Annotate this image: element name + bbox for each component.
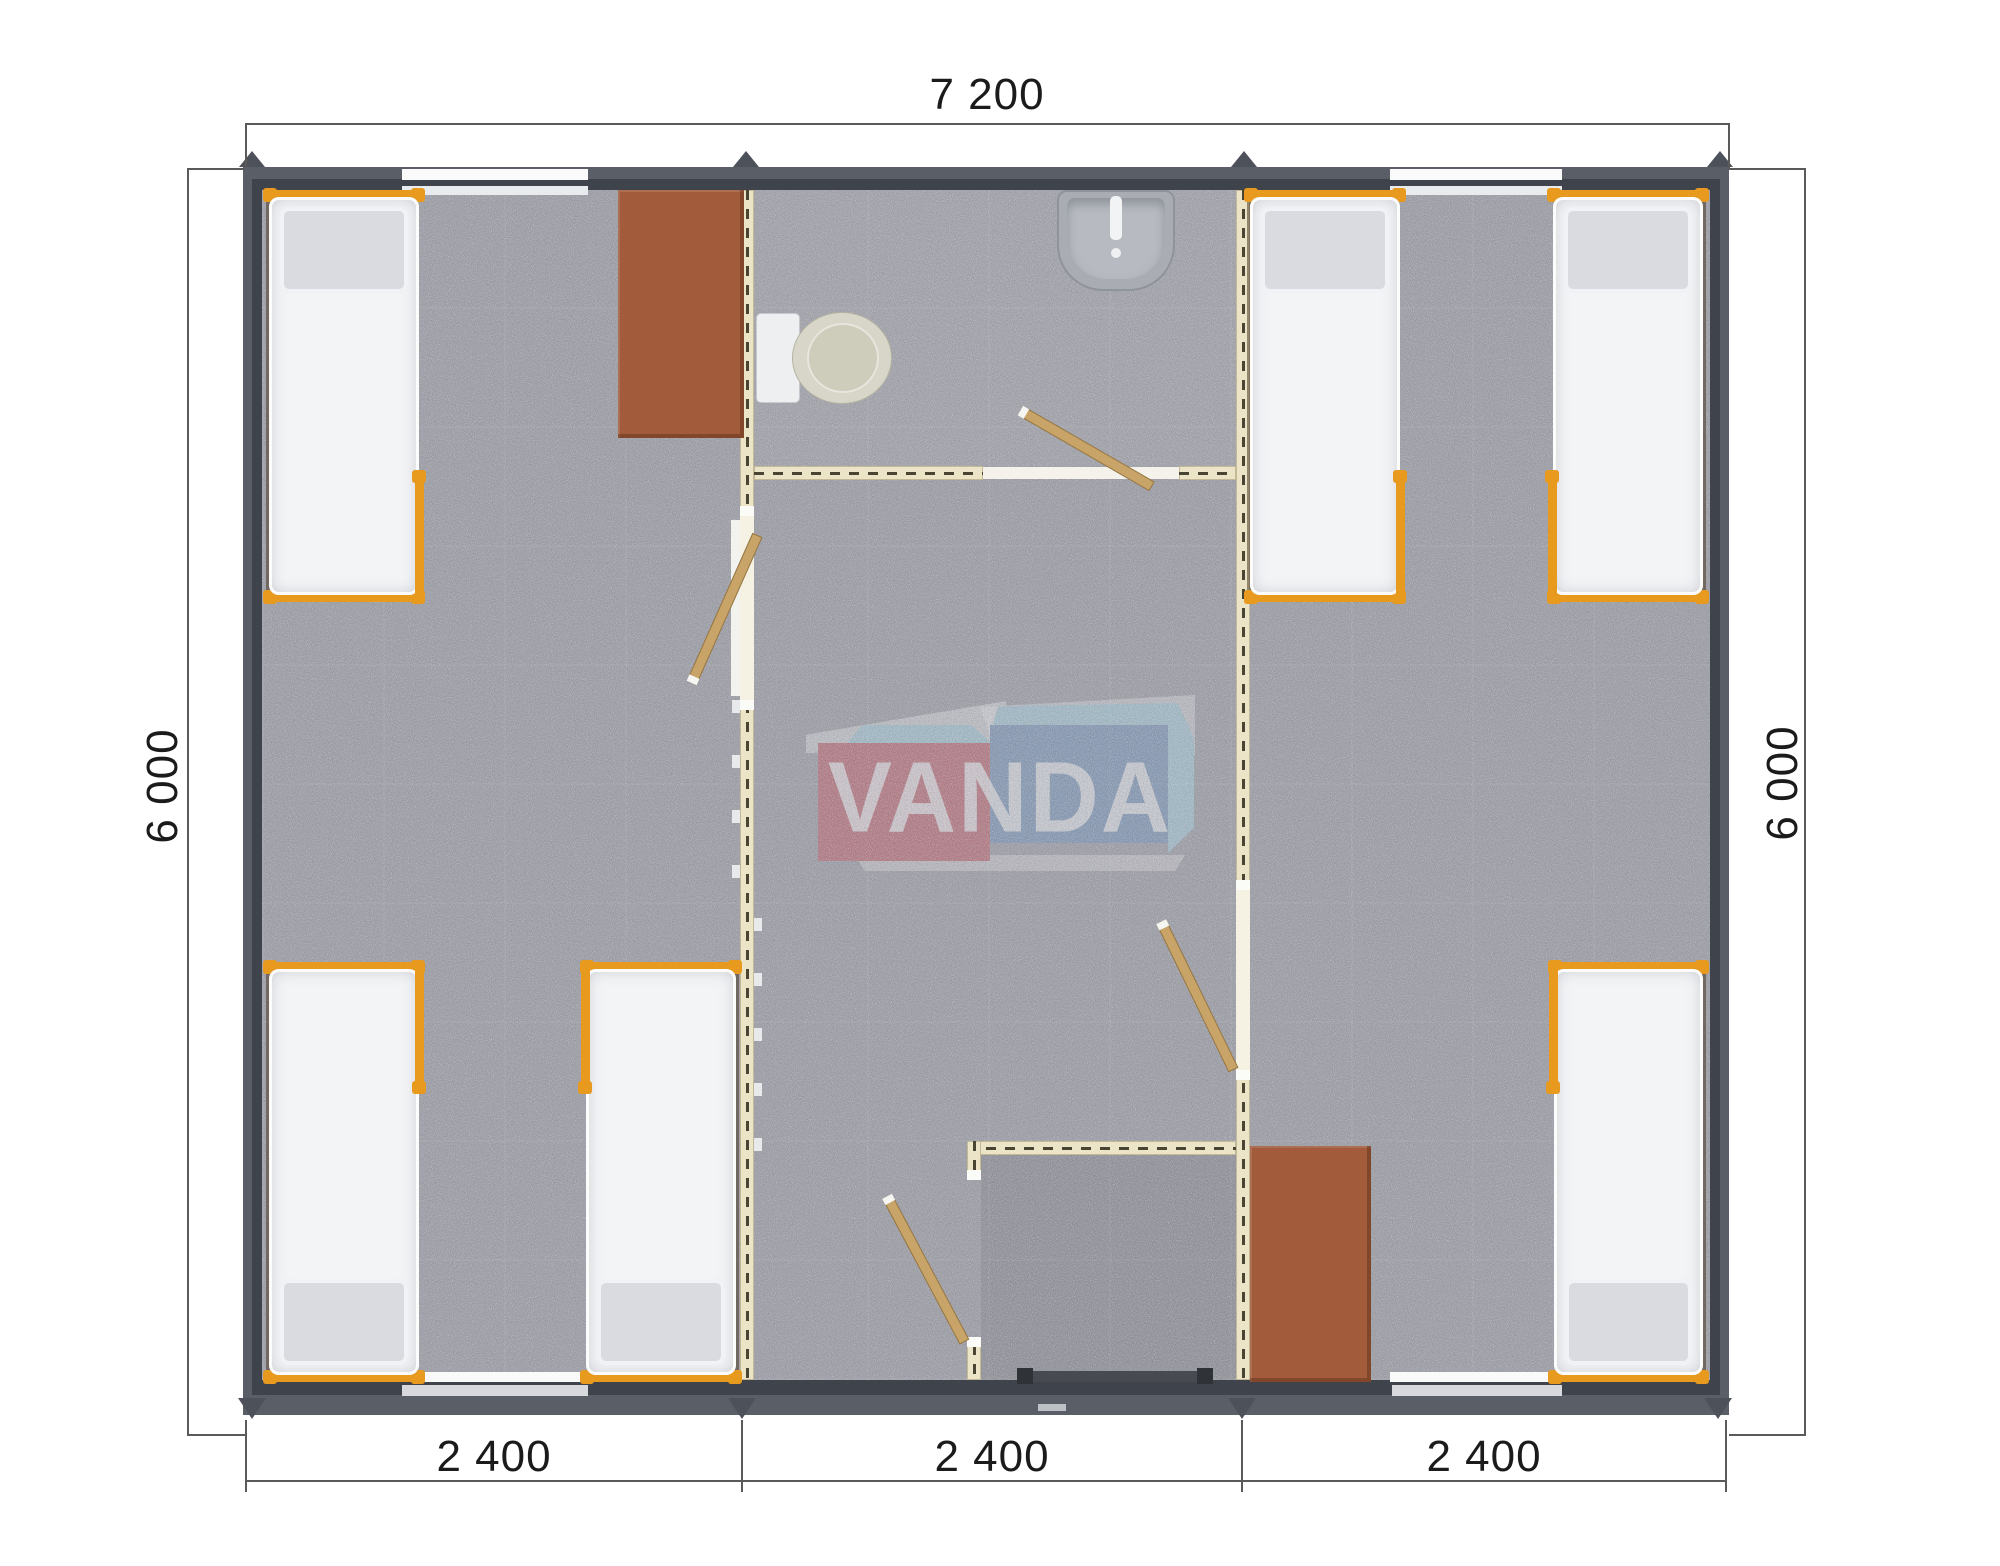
roof-marker-icon bbox=[733, 151, 759, 167]
bed-pillow bbox=[597, 1279, 725, 1365]
bed-side-rail bbox=[415, 476, 424, 594]
bed bbox=[1550, 190, 1706, 602]
bathroom-wall bbox=[1179, 466, 1236, 480]
window-sill bbox=[1390, 1372, 1562, 1382]
window bbox=[1390, 169, 1562, 180]
bed-side-rail bbox=[415, 970, 424, 1088]
door-opening-bathroom bbox=[983, 467, 1179, 479]
dimension-label-bottom-2: 2 400 bbox=[892, 1432, 1092, 1482]
bathroom-wall bbox=[754, 466, 983, 480]
bed bbox=[583, 962, 739, 1382]
bed bbox=[1551, 962, 1706, 1382]
extension-line bbox=[741, 1420, 743, 1492]
roof-marker-icon bbox=[239, 151, 265, 167]
bed-pillow bbox=[1565, 1279, 1692, 1365]
dimension-label-bottom-1: 2 400 bbox=[394, 1432, 594, 1482]
bed-side-rail bbox=[1549, 970, 1558, 1088]
wall-panel-nub bbox=[754, 1083, 762, 1096]
dimension-label-top: 7 200 bbox=[887, 70, 1087, 120]
door-jamb bbox=[1236, 1070, 1250, 1080]
desk bbox=[1250, 1146, 1371, 1382]
dimension-label-left: 6 000 bbox=[138, 711, 188, 861]
shower-wall bbox=[967, 1345, 981, 1380]
dimension-line-top bbox=[245, 123, 1730, 125]
window bbox=[402, 1385, 588, 1396]
extension-line bbox=[1729, 1434, 1806, 1436]
toilet-seat bbox=[807, 323, 879, 393]
door-jamb bbox=[740, 700, 754, 710]
wall-panel-nub bbox=[754, 973, 762, 986]
shower-wall bbox=[967, 1141, 1236, 1155]
extension-line bbox=[245, 1420, 247, 1492]
floor-plan: VANDA bbox=[0, 0, 2000, 1566]
dimension-label-bottom-3: 2 400 bbox=[1384, 1432, 1584, 1482]
window bbox=[1392, 1385, 1562, 1396]
extension-line bbox=[245, 123, 247, 168]
toilet bbox=[792, 312, 892, 404]
floor-texture bbox=[262, 190, 1710, 1380]
door-jamb bbox=[1236, 880, 1250, 890]
sink bbox=[1057, 190, 1175, 291]
door-jamb bbox=[740, 506, 754, 516]
faucet bbox=[1110, 196, 1122, 240]
extension-line bbox=[1728, 123, 1730, 168]
window-sill bbox=[399, 1372, 588, 1382]
dimension-arrow-icon bbox=[1228, 1398, 1256, 1419]
roof-marker-icon bbox=[1231, 151, 1257, 167]
bed bbox=[266, 962, 422, 1382]
wall-panel-nub bbox=[732, 700, 740, 713]
door-jamb bbox=[967, 1170, 981, 1180]
wall-panel-nub bbox=[754, 918, 762, 931]
extension-line bbox=[1729, 168, 1806, 170]
dimension-label-right: 6 000 bbox=[1758, 708, 1808, 858]
entrance-door bbox=[1017, 1371, 1213, 1382]
extension-line bbox=[1241, 1420, 1243, 1492]
bed-pillow bbox=[1564, 207, 1692, 293]
wall-panel-nub bbox=[732, 865, 740, 878]
window-sill bbox=[1390, 186, 1562, 195]
dimension-arrow-icon bbox=[728, 1398, 756, 1419]
bed-side-rail bbox=[1548, 476, 1557, 594]
wall-panel-nub bbox=[754, 1138, 762, 1151]
wall-panel-nub bbox=[732, 755, 740, 768]
extension-line bbox=[1725, 1420, 1727, 1492]
window bbox=[402, 169, 588, 180]
entrance-door-jamb bbox=[1017, 1368, 1033, 1384]
drain bbox=[1111, 248, 1121, 258]
bed-pillow bbox=[280, 1279, 408, 1365]
entrance-step bbox=[1038, 1404, 1066, 1411]
entrance-door-jamb bbox=[1197, 1368, 1213, 1384]
wall-panel-nub bbox=[732, 810, 740, 823]
bed-side-rail bbox=[1396, 476, 1405, 594]
bed bbox=[266, 190, 422, 602]
bed-pillow bbox=[1261, 207, 1389, 293]
dimension-arrow-icon bbox=[238, 1398, 266, 1419]
bed bbox=[1247, 190, 1403, 602]
bed-pillow bbox=[280, 207, 408, 293]
door-opening-right-room bbox=[1236, 890, 1250, 1070]
wall-panel-nub bbox=[754, 1028, 762, 1041]
door-frame-strip bbox=[731, 520, 740, 696]
dimension-arrow-icon bbox=[1704, 1398, 1732, 1419]
bed-side-rail bbox=[581, 970, 590, 1088]
desk bbox=[618, 190, 744, 438]
extension-line bbox=[187, 168, 245, 170]
extension-line bbox=[187, 1434, 245, 1436]
window-sill bbox=[402, 186, 588, 195]
